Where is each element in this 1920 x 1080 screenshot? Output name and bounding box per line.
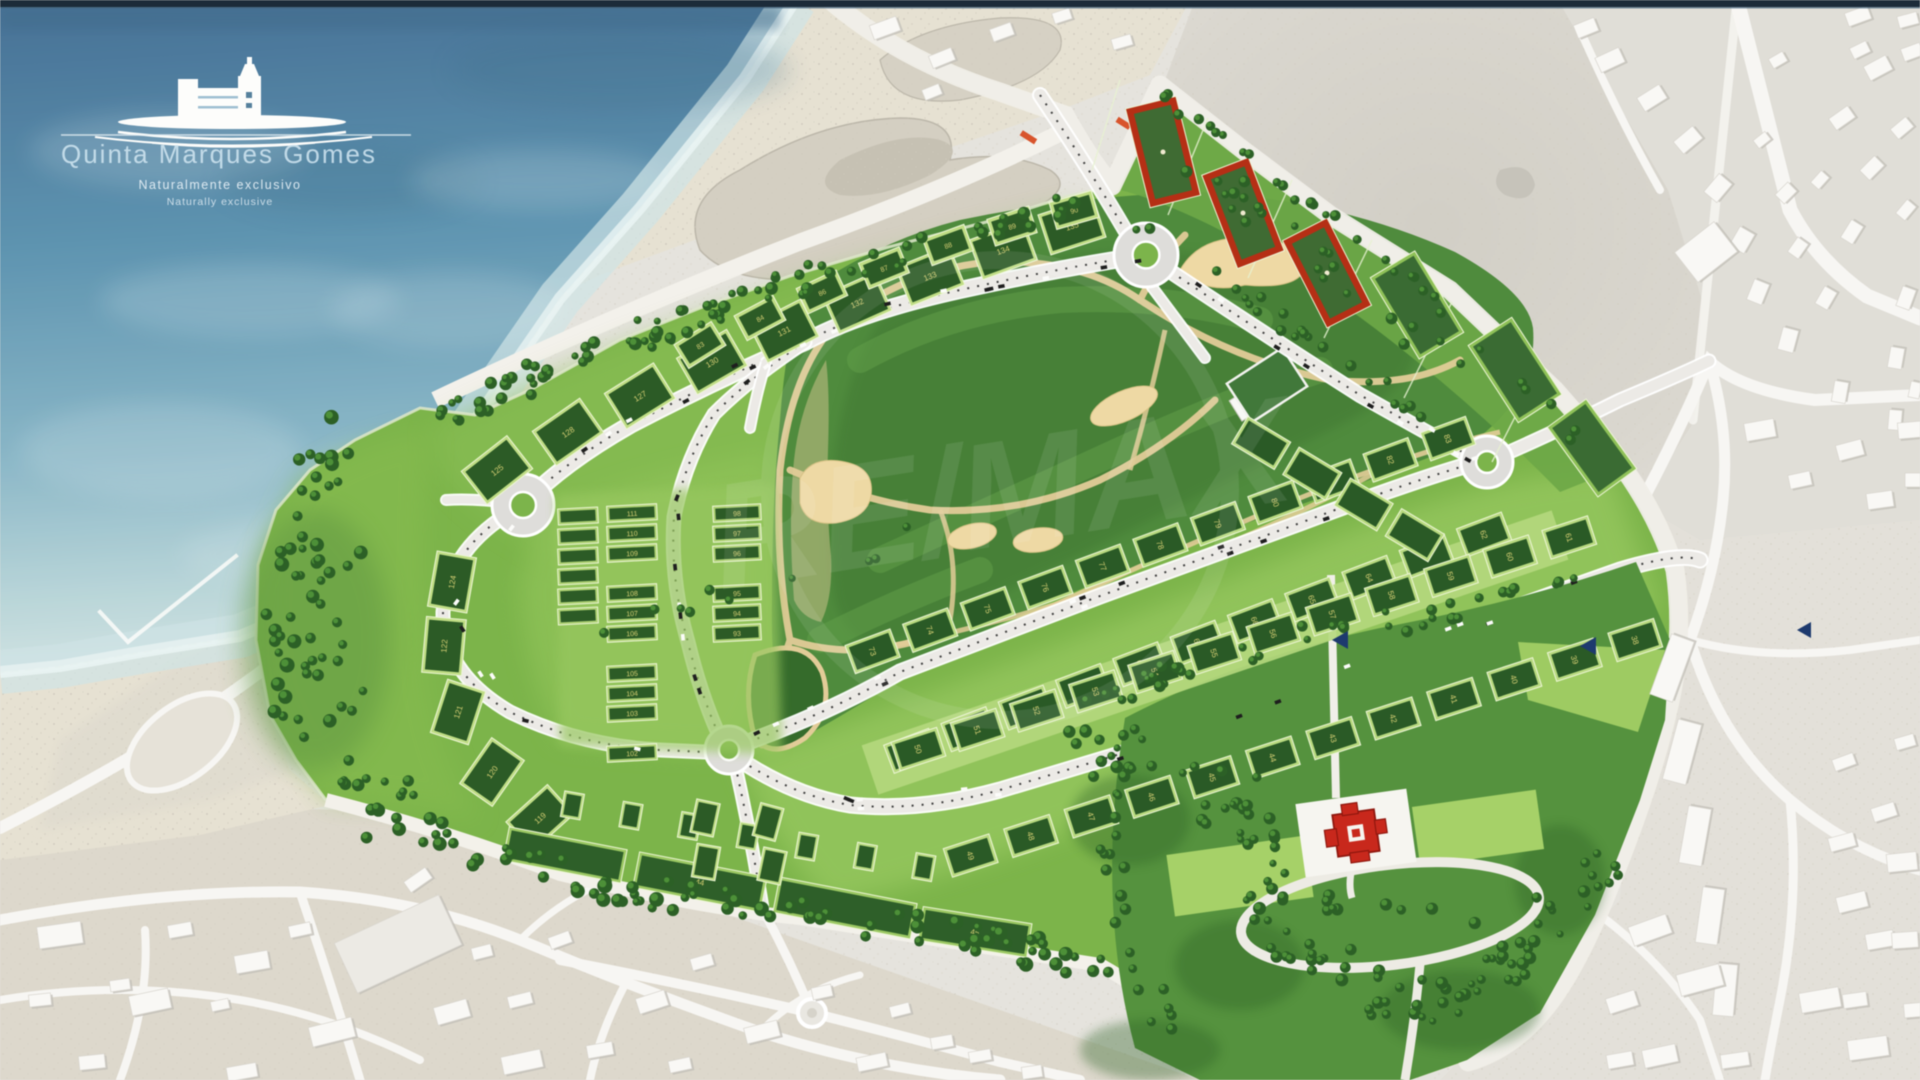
svg-text:109: 109 [626, 551, 638, 559]
svg-text:Naturally exclusive: Naturally exclusive [167, 196, 274, 208]
svg-text:111: 111 [627, 511, 638, 519]
svg-text:122: 122 [439, 638, 449, 653]
svg-text:106: 106 [626, 631, 638, 639]
svg-text:103: 103 [626, 711, 638, 719]
svg-text:108: 108 [626, 591, 638, 599]
svg-text:93: 93 [733, 631, 741, 638]
svg-text:Quinta Marques Gomes: Quinta Marques Gomes [61, 139, 377, 169]
svg-text:102: 102 [626, 751, 638, 759]
svg-text:Naturalmente exclusivo: Naturalmente exclusivo [139, 178, 302, 192]
svg-text:104: 104 [626, 691, 638, 699]
svg-text:110: 110 [626, 531, 638, 539]
svg-text:107: 107 [626, 611, 638, 619]
svg-text:105: 105 [626, 671, 638, 679]
